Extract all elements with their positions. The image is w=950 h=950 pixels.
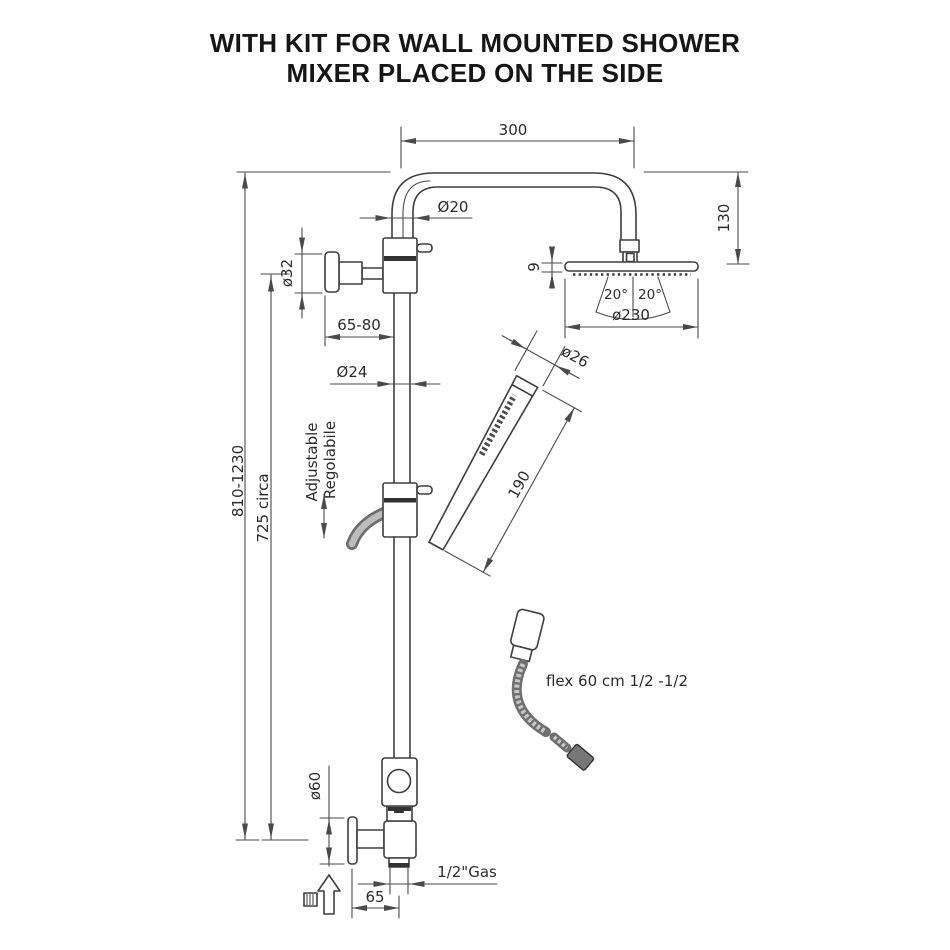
hose-stub (352, 512, 386, 544)
dim-bracket-diameter-label: ø32 (278, 259, 296, 287)
dim-arm-pipe-diameter-label: Ø20 (438, 198, 469, 216)
dim-column-height-label: 810-1230 (229, 445, 247, 517)
flex-hose-label: flex 60 cm 1/2 -1/2 (546, 672, 688, 690)
dim-bracket-reach: 65-80 (325, 296, 394, 346)
dim-outlet-offset-label: 65 (365, 888, 384, 906)
dim-bracket-diameter: ø32 (278, 228, 322, 318)
dim-arm-pipe-diameter: Ø20 (360, 198, 472, 218)
dim-outlet-thread-label: 1/2"Gas (437, 863, 497, 881)
dim-column-fixed-label: 725 circa (254, 473, 272, 542)
direction-up-arrow-icon (318, 875, 340, 914)
dim-head-thickness-label: 9 (525, 262, 543, 272)
dim-column-diameter: Ø24 (330, 363, 440, 384)
dim-handshower-diameter-label: ø26 (558, 342, 591, 371)
dim-head-diameter-label: ø230 (612, 306, 650, 324)
dim-column-diameter-label: Ø24 (337, 363, 368, 381)
flex-hose-detail: flex 60 cm 1/2 -1/2 (507, 608, 688, 770)
spray-angle-right-label: 20° (638, 287, 662, 303)
shower-arm (392, 173, 636, 244)
diverter-body-top (383, 238, 432, 293)
technical-drawing: 810-1230 725 circa 300 (0, 0, 950, 950)
adjustable-label-en: Adjustable (303, 423, 321, 502)
hand-shower: ø26 190 (398, 313, 608, 576)
dim-arm-length-label: 300 (499, 121, 528, 139)
dim-arm-length: 300 (401, 121, 634, 168)
dim-head-diameter: ø230 (565, 279, 698, 338)
dim-head-thickness: 9 (525, 247, 562, 288)
dim-flange-diameter-label: ø60 (306, 772, 324, 800)
wall-bracket-upper (325, 252, 383, 292)
dim-flange-diameter: ø60 (306, 766, 344, 866)
dim-outlet-offset: 65 (352, 869, 399, 918)
adjustable-label-it: Regolabile (321, 421, 339, 499)
dim-handshower-length-label: 190 (504, 468, 534, 502)
dim-head-drop: 130 (644, 172, 749, 264)
diverter-knob (388, 770, 411, 793)
wall-hatch-icon (304, 893, 317, 906)
adjustable-annotation: Adjustable Regolabile (303, 421, 339, 538)
slider-bracket (383, 483, 432, 537)
dim-column-fixed: 725 circa (254, 274, 308, 840)
diagram-page: WITH KIT FOR WALL MOUNTED SHOWER MIXER P… (0, 0, 950, 950)
dim-head-drop-label: 130 (715, 204, 733, 233)
wall-flange (348, 817, 357, 864)
dim-bracket-reach-label: 65-80 (337, 316, 381, 334)
hand-shower-body (426, 376, 538, 552)
spray-angle-left-label: 20° (604, 287, 628, 303)
overhead-shower-head (565, 240, 698, 275)
mixer-body-bottom (348, 758, 417, 867)
